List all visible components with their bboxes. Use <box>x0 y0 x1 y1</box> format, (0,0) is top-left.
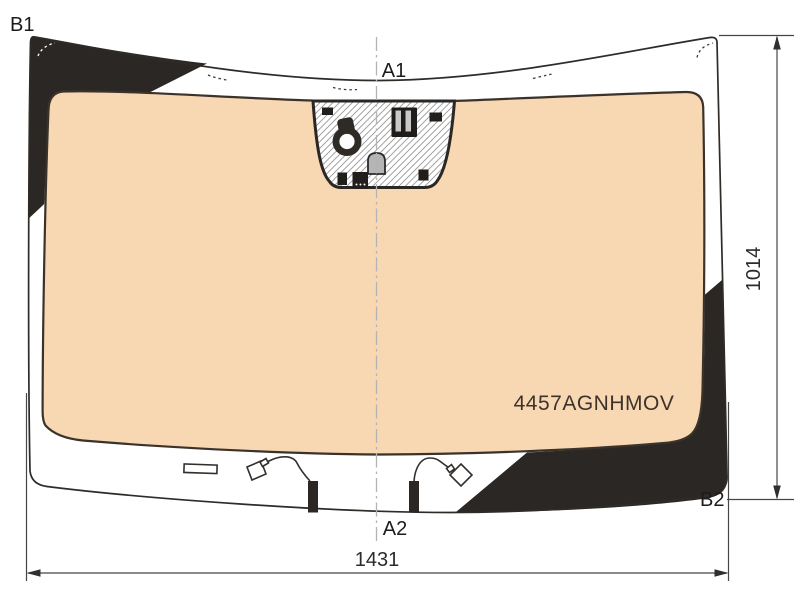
mounting-pad-icon <box>430 113 443 122</box>
part-number: 4457AGNHMOV <box>514 392 675 415</box>
camera-bracket-icon <box>392 108 418 138</box>
mounting-pad-icon <box>338 173 348 186</box>
sensor-area <box>313 101 455 189</box>
label-b2: B2 <box>700 489 724 511</box>
connector-block-icon <box>353 172 369 189</box>
label-a1: A1 <box>382 60 406 82</box>
mounting-pad-icon <box>322 108 333 116</box>
dimension-height-value: 1014 <box>743 247 765 292</box>
dimension-width-value: 1431 <box>355 549 400 571</box>
terminal-pad-icon <box>184 464 217 474</box>
windshield-diagram: 4457AGNHMOV 1014 1431 B1 A1 A <box>0 0 800 600</box>
label-b1: B1 <box>10 14 34 36</box>
wiper-post-right <box>409 481 419 513</box>
label-a2: A2 <box>383 518 407 540</box>
mounting-pad-icon <box>419 170 429 181</box>
dimension-height: 1014 <box>719 36 794 500</box>
diagram-canvas: 4457AGNHMOV 1014 1431 B1 A1 A <box>0 0 800 600</box>
wiper-post-left <box>308 481 318 513</box>
